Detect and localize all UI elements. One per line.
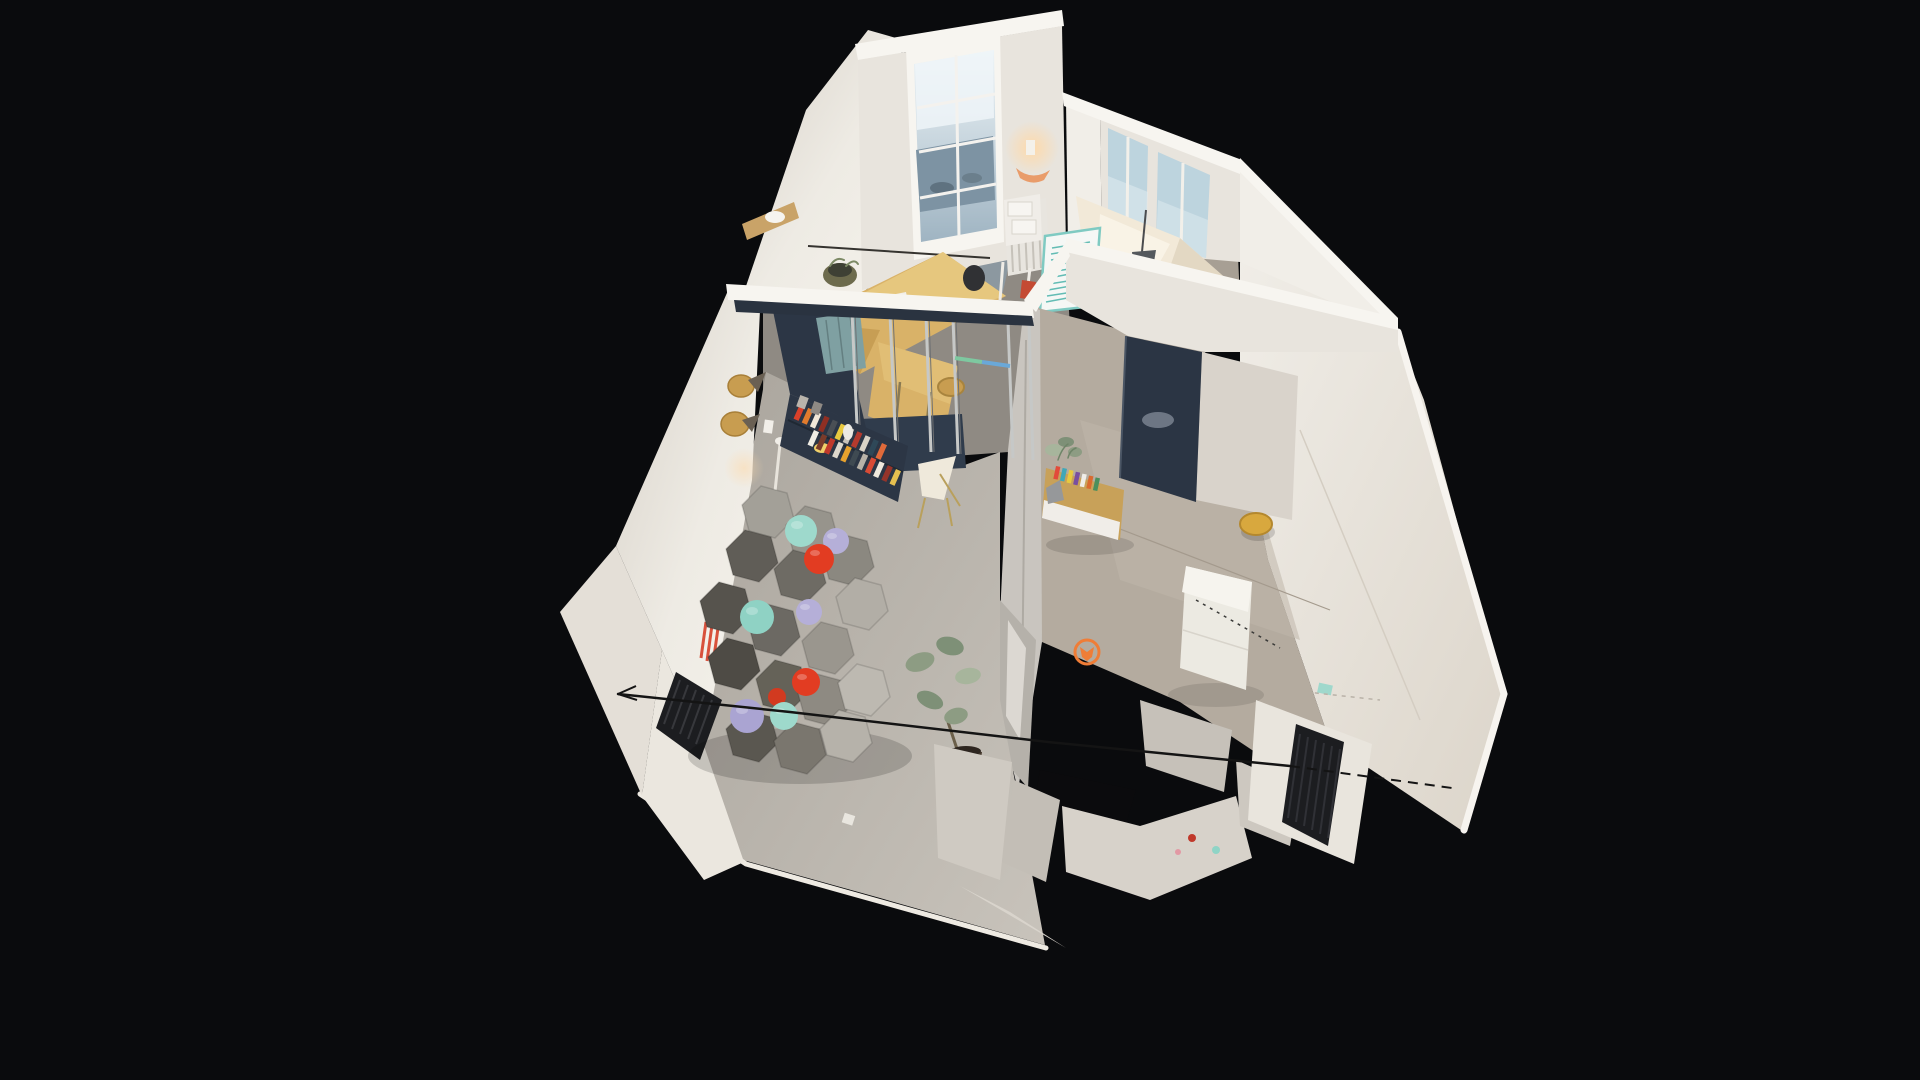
wall-right-of-door [1196,352,1298,520]
wall-lamp [1026,140,1035,155]
street-car-blob [962,173,982,183]
white-vase [843,424,853,440]
door-reflection [1142,412,1174,428]
debris-fleck [1188,834,1196,842]
wood-wall-lamp [728,375,754,397]
yellow-stool [1240,513,1272,535]
viewer-canvas[interactable] [0,0,1920,1080]
dollhouse-model [0,0,1920,1080]
desk-chair [963,265,985,291]
wood-stool [938,378,964,396]
printer-box [1008,202,1032,216]
debris-fleck [1212,846,1220,854]
wood-wall-lamp [721,412,749,436]
debris-fleck [1175,849,1181,855]
printer-box [1012,220,1036,234]
shadow [1168,683,1264,707]
shelf-tissue [765,211,785,223]
window-mullion [1181,163,1183,251]
door-glass-glare [915,50,994,130]
wall-lamp-glow [724,448,764,488]
shadow [1046,535,1134,555]
debris-shard [934,744,1012,880]
light-switch [763,420,774,434]
